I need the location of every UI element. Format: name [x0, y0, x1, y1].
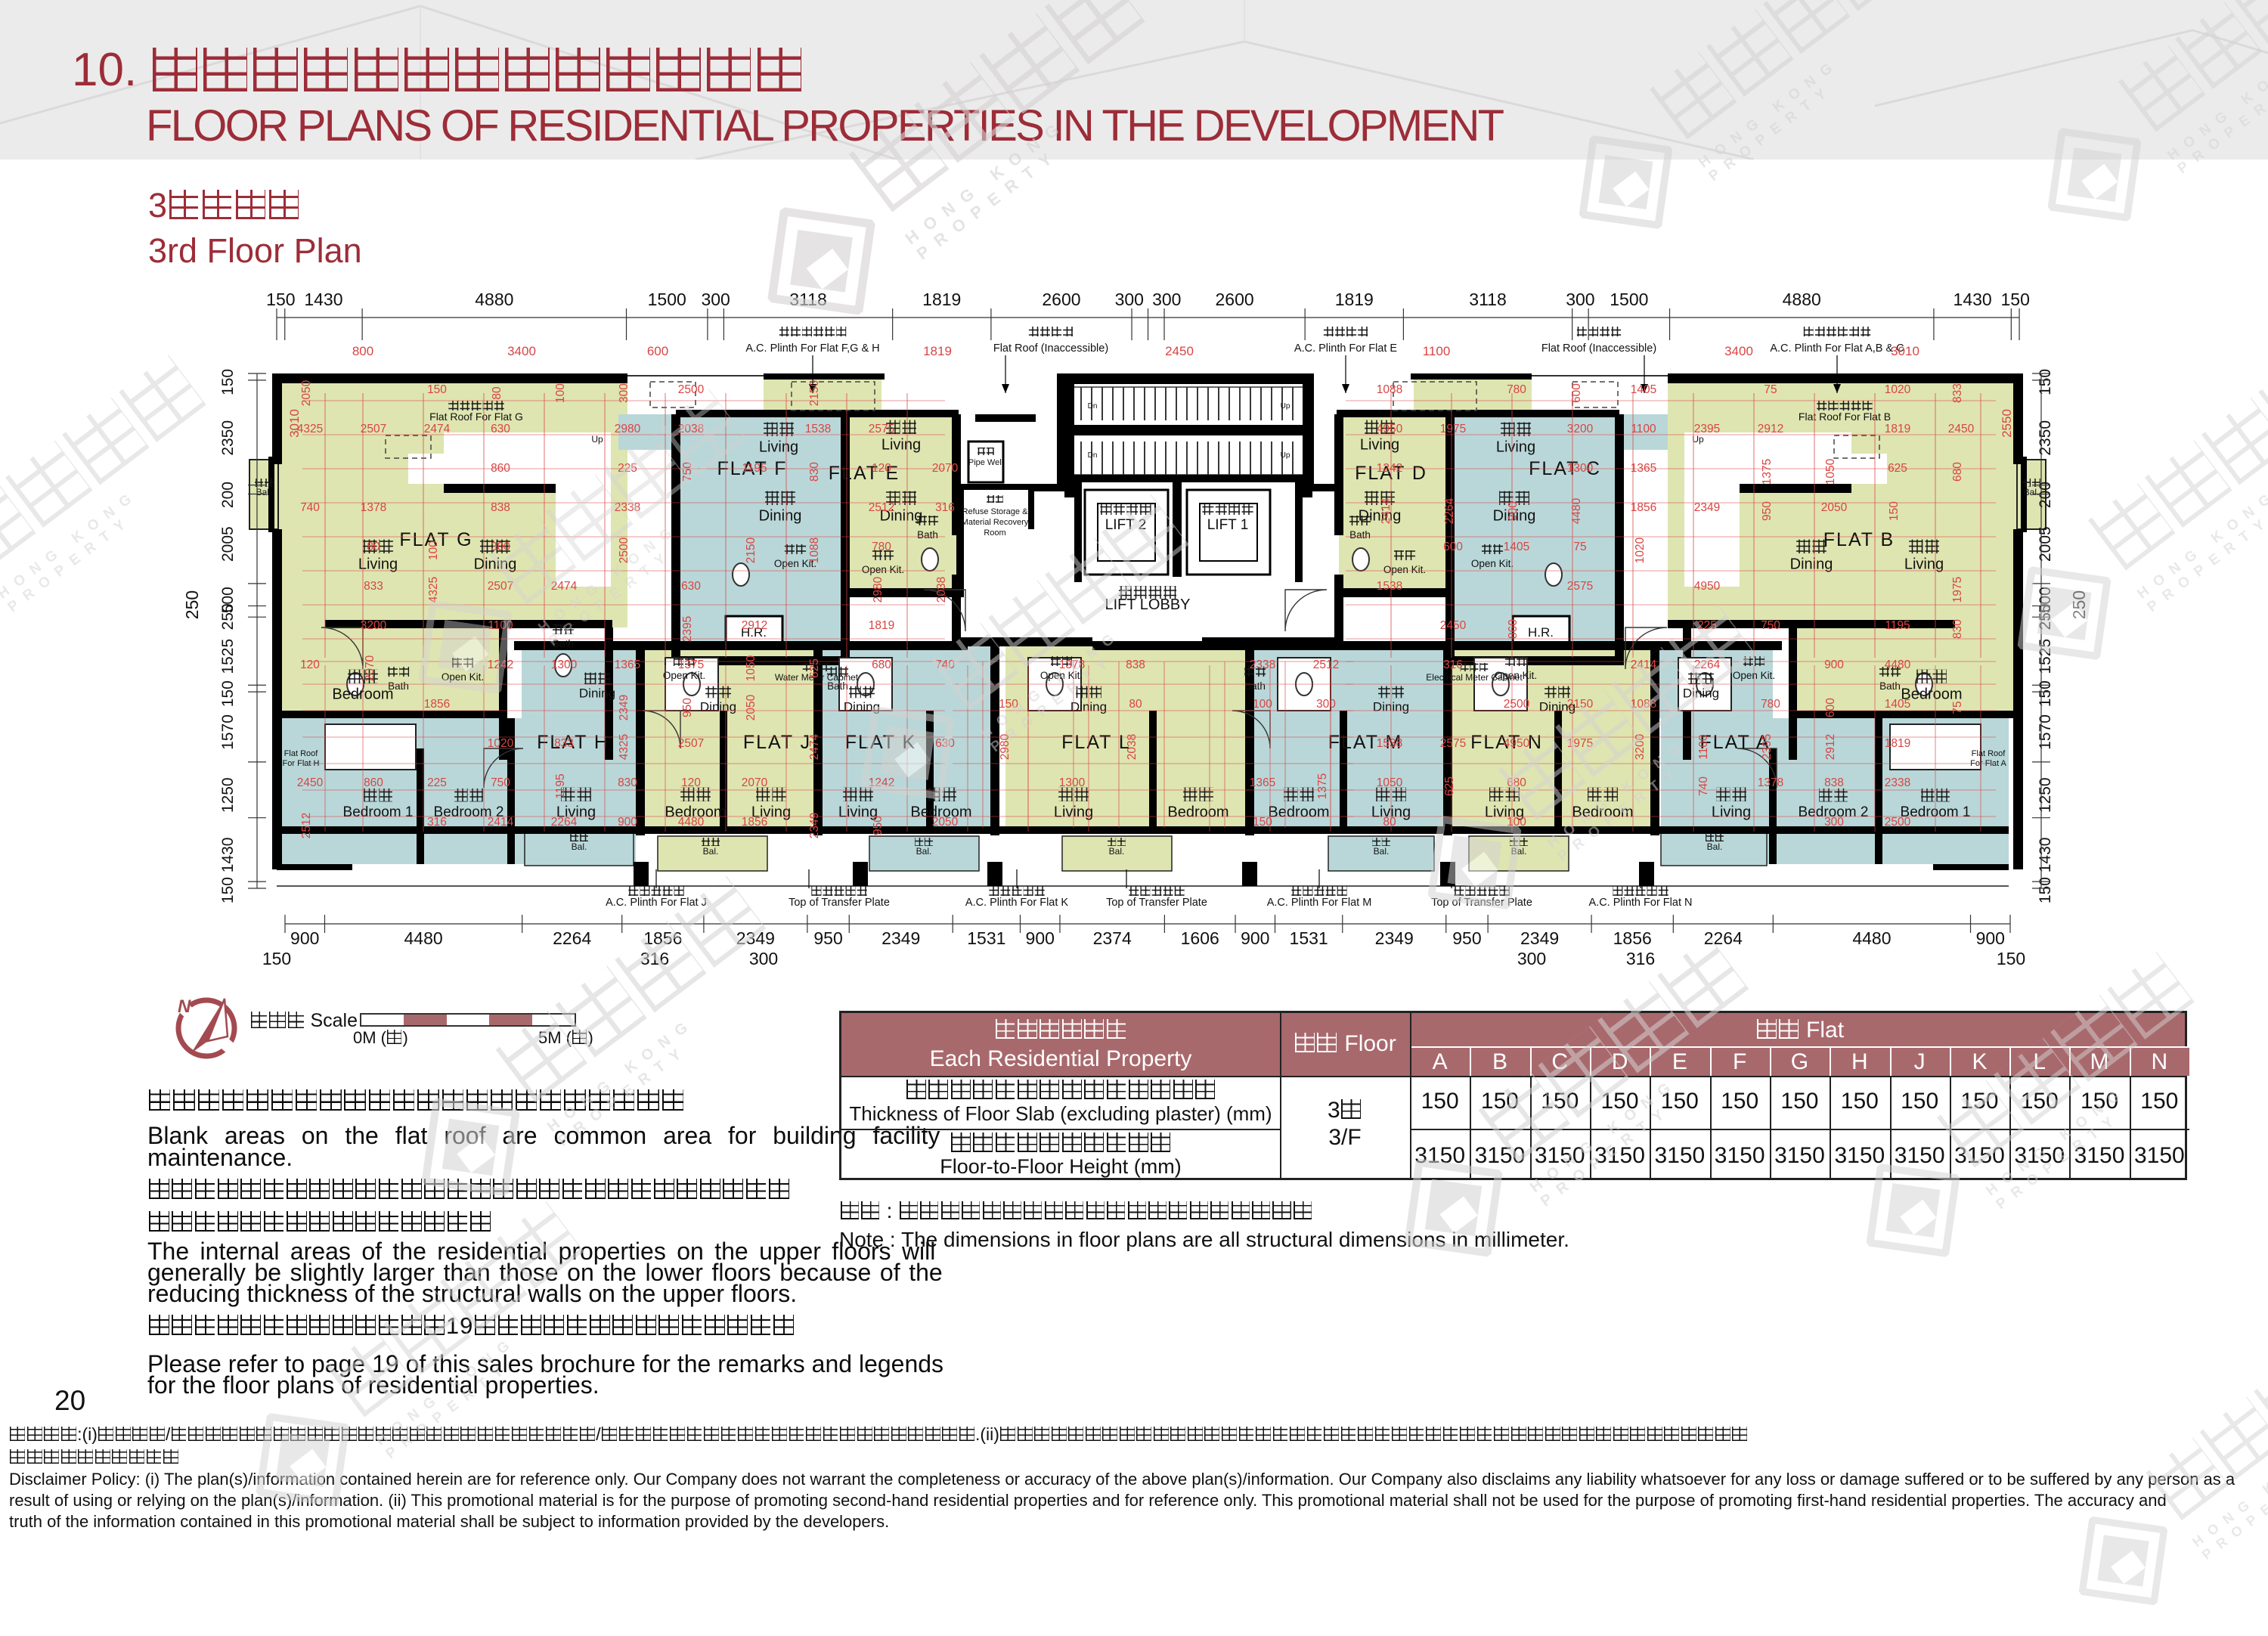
svg-text:FLAT A: FLAT A [1699, 732, 1770, 753]
svg-text:1250: 1250 [2037, 777, 2054, 813]
svg-text:838: 838 [491, 501, 510, 514]
svg-text:2338: 2338 [1250, 658, 1275, 671]
svg-text:1375: 1375 [1316, 773, 1329, 799]
svg-text:1195: 1195 [1885, 619, 1910, 632]
svg-text:Living: Living [1904, 556, 1944, 572]
svg-text:80: 80 [367, 541, 380, 553]
svg-text:Dining: Dining [700, 700, 736, 714]
svg-text:2512: 2512 [869, 501, 894, 514]
svg-text:Living: Living [1496, 438, 1535, 455]
svg-text:300: 300 [701, 290, 730, 309]
svg-text:200: 200 [2037, 482, 2054, 508]
svg-text:838: 838 [1824, 776, 1844, 789]
svg-text:1378: 1378 [1758, 776, 1783, 789]
svg-text:FLAT B: FLAT B [1823, 529, 1895, 550]
svg-text:150: 150 [2037, 877, 2054, 903]
svg-text:860: 860 [364, 776, 383, 789]
svg-text:4880: 4880 [475, 290, 513, 309]
svg-text:Flat Roof (Inaccessible): Flat Roof (Inaccessible) [1541, 342, 1656, 355]
svg-text:2912: 2912 [1824, 734, 1837, 760]
svg-text:1819: 1819 [922, 290, 961, 309]
svg-text:2349: 2349 [1520, 928, 1559, 948]
svg-text:225: 225 [427, 776, 447, 789]
svg-text:Dining: Dining [1683, 686, 1719, 701]
svg-text:1430: 1430 [304, 290, 342, 309]
svg-text:Electrical Meter Cabinet: Electrical Meter Cabinet [1426, 672, 1523, 683]
svg-text:680: 680 [872, 658, 891, 671]
svg-text:1050: 1050 [1377, 776, 1403, 789]
svg-text:150: 150 [1253, 816, 1272, 829]
svg-text:2414: 2414 [1631, 658, 1657, 671]
svg-text:FLAT L: FLAT L [1061, 732, 1131, 753]
svg-text:630: 630 [681, 580, 701, 593]
svg-text:2005: 2005 [219, 526, 237, 562]
svg-text:Top of Transfer Plate: Top of Transfer Plate [789, 897, 890, 909]
svg-text:1819: 1819 [923, 344, 952, 358]
svg-text:4480: 4480 [678, 816, 705, 829]
svg-text:4325: 4325 [618, 734, 631, 760]
svg-text:Flat Roof For Flat G: Flat Roof For Flat G [429, 411, 523, 423]
svg-text:316: 316 [935, 501, 955, 514]
svg-text:800: 800 [352, 344, 373, 358]
svg-text:150: 150 [2037, 680, 2054, 707]
svg-text:300: 300 [1566, 290, 1594, 309]
svg-text:Dn: Dn [1088, 402, 1098, 411]
svg-text:4950: 4950 [1377, 423, 1403, 435]
svg-text:750: 750 [1761, 619, 1780, 632]
svg-text:3200: 3200 [1567, 423, 1594, 435]
svg-text:4480: 4480 [1885, 658, 1911, 671]
svg-text:150: 150 [1888, 501, 1901, 521]
svg-text:1405: 1405 [1885, 698, 1910, 711]
svg-text:4480: 4480 [404, 928, 442, 948]
svg-text:120: 120 [872, 462, 891, 475]
svg-text:2474: 2474 [424, 423, 451, 435]
svg-text:1531: 1531 [967, 928, 1005, 948]
svg-text:1538: 1538 [1377, 580, 1402, 593]
svg-text:750: 750 [681, 462, 694, 482]
svg-text:1020: 1020 [1885, 383, 1911, 396]
svg-text:2414: 2414 [1380, 497, 1393, 524]
svg-text:A.C. Plinth For Flat M: A.C. Plinth For Flat M [1267, 897, 1372, 909]
svg-text:2507: 2507 [678, 737, 704, 750]
svg-text:300: 300 [618, 383, 631, 403]
svg-text:Bal.: Bal. [916, 846, 932, 857]
svg-text:Dining: Dining [474, 556, 517, 572]
svg-text:1195: 1195 [742, 462, 767, 475]
svg-text:680: 680 [1951, 462, 1964, 482]
svg-text:1050: 1050 [1824, 458, 1837, 485]
svg-text:1500: 1500 [648, 290, 686, 309]
svg-text:Up: Up [1281, 402, 1290, 411]
svg-text:3400: 3400 [1724, 344, 1753, 358]
svg-text:1819: 1819 [1335, 290, 1374, 309]
svg-text:1538: 1538 [805, 423, 831, 435]
svg-text:2150: 2150 [808, 380, 821, 406]
svg-text:2070: 2070 [932, 462, 959, 475]
svg-text:4950: 4950 [1504, 737, 1530, 750]
svg-text:Material Recovery: Material Recovery [962, 518, 1029, 527]
svg-text:1819: 1819 [1885, 737, 1910, 750]
svg-text:900: 900 [290, 928, 319, 948]
svg-text:1819: 1819 [1885, 423, 1910, 435]
svg-text:1020: 1020 [488, 737, 514, 750]
svg-text:Up: Up [1692, 434, 1704, 445]
svg-text:1365: 1365 [615, 658, 640, 671]
svg-text:316: 316 [427, 816, 447, 829]
svg-text:1088: 1088 [808, 538, 821, 563]
svg-text:950: 950 [1452, 928, 1481, 948]
svg-text:1242: 1242 [488, 658, 513, 671]
svg-text:950: 950 [1761, 501, 1774, 521]
svg-text:Room: Room [984, 528, 1005, 538]
svg-text:Bedroom: Bedroom [1167, 804, 1228, 820]
svg-text:2575: 2575 [1440, 737, 1466, 750]
svg-text:2349: 2349 [881, 928, 920, 948]
svg-text:2474: 2474 [808, 733, 821, 760]
svg-text:1088: 1088 [1631, 698, 1656, 711]
svg-text:4480: 4480 [1570, 497, 1583, 524]
svg-text:300: 300 [1115, 290, 1144, 309]
svg-text:740: 740 [300, 501, 320, 514]
svg-text:2038: 2038 [935, 577, 948, 603]
svg-text:780: 780 [1761, 698, 1780, 711]
svg-text:2264: 2264 [551, 816, 578, 829]
svg-text:2050: 2050 [932, 816, 959, 829]
svg-text:4880: 4880 [1783, 290, 1821, 309]
svg-text:1378: 1378 [361, 501, 386, 514]
svg-text:780: 780 [1507, 383, 1526, 396]
svg-text:2264: 2264 [1694, 658, 1721, 671]
svg-text:75: 75 [1951, 701, 1964, 714]
svg-text:1365: 1365 [1250, 776, 1275, 789]
svg-text:LIFT LOBBY: LIFT LOBBY [1105, 596, 1190, 613]
svg-text:A.C. Plinth For Flat F,G & H: A.C. Plinth For Flat F,G & H [745, 342, 879, 355]
svg-text:2395: 2395 [681, 616, 694, 642]
svg-text:600: 600 [647, 344, 668, 358]
svg-text:100: 100 [1507, 816, 1526, 829]
svg-text:Up: Up [591, 434, 603, 445]
svg-text:1375: 1375 [1761, 459, 1774, 485]
svg-text:Open Kit.: Open Kit. [1040, 670, 1083, 681]
svg-text:1300: 1300 [1059, 776, 1086, 789]
svg-text:740: 740 [1697, 776, 1710, 796]
svg-text:833: 833 [554, 737, 574, 750]
svg-text:860: 860 [1507, 619, 1520, 639]
svg-text:1525: 1525 [219, 639, 237, 674]
svg-text:LIFT 1: LIFT 1 [1207, 517, 1249, 533]
svg-text:Bath: Bath [917, 529, 938, 541]
svg-text:300: 300 [491, 541, 510, 553]
svg-text:316: 316 [640, 949, 669, 968]
svg-text:830: 830 [618, 776, 637, 789]
svg-text:1378: 1378 [1059, 658, 1085, 671]
svg-text:100: 100 [1253, 698, 1272, 711]
svg-text:900: 900 [1507, 501, 1520, 521]
svg-text:833: 833 [364, 580, 383, 593]
svg-text:1020: 1020 [1634, 537, 1647, 563]
svg-text:Open Kit.: Open Kit. [663, 670, 705, 681]
svg-text:2349: 2349 [618, 695, 631, 720]
svg-text:2600: 2600 [1042, 290, 1080, 309]
svg-text:100: 100 [427, 541, 440, 560]
svg-text:2512: 2512 [1313, 658, 1339, 671]
svg-text:Living: Living [759, 438, 798, 455]
svg-text:Dining: Dining [844, 700, 880, 714]
svg-text:1975: 1975 [1951, 577, 1964, 603]
svg-text:250: 250 [182, 590, 202, 619]
svg-text:Open Kit.: Open Kit. [862, 564, 904, 575]
svg-text:900: 900 [1976, 928, 2005, 948]
svg-text:75: 75 [1573, 541, 1586, 553]
svg-text:Bal.: Bal. [256, 487, 272, 497]
svg-text:316: 316 [1626, 949, 1655, 968]
svg-text:2050: 2050 [745, 694, 758, 720]
svg-text:740: 740 [935, 658, 955, 671]
svg-text:Top of Transfer Plate: Top of Transfer Plate [1106, 897, 1207, 909]
svg-text:2338: 2338 [1885, 776, 1910, 789]
svg-text:1088: 1088 [1377, 383, 1402, 396]
svg-text:A.C. Plinth For Flat J: A.C. Plinth For Flat J [606, 897, 707, 909]
svg-text:150: 150 [427, 383, 447, 396]
svg-text:150: 150 [2037, 369, 2054, 395]
svg-text:225: 225 [618, 462, 637, 475]
svg-text:2050: 2050 [300, 380, 313, 406]
svg-text:80: 80 [1383, 816, 1396, 829]
svg-text:3200: 3200 [1634, 733, 1647, 760]
svg-text:838: 838 [1126, 658, 1145, 671]
svg-text:80: 80 [491, 386, 503, 400]
svg-text:830: 830 [1951, 619, 1964, 639]
svg-text:2395: 2395 [1761, 734, 1774, 760]
svg-text:1050: 1050 [745, 655, 758, 681]
svg-text:2450: 2450 [1165, 344, 1194, 358]
svg-text:2575: 2575 [1567, 580, 1593, 593]
svg-text:900: 900 [1241, 928, 1269, 948]
svg-text:2349: 2349 [808, 813, 821, 838]
svg-text:2264: 2264 [1704, 928, 1743, 948]
svg-text:2349: 2349 [1694, 501, 1720, 514]
svg-text:2450: 2450 [1440, 619, 1467, 632]
svg-text:150: 150 [262, 949, 291, 968]
svg-text:900: 900 [1026, 928, 1055, 948]
svg-text:2264: 2264 [1443, 497, 1456, 524]
svg-text:Bal.: Bal. [1707, 841, 1723, 852]
svg-text:Dn: Dn [1088, 451, 1098, 460]
svg-text:3010: 3010 [287, 409, 302, 438]
svg-text:1300: 1300 [1567, 462, 1594, 475]
svg-text:2507: 2507 [361, 423, 386, 435]
svg-text:1856: 1856 [1613, 928, 1652, 948]
svg-text:950: 950 [872, 816, 885, 835]
svg-text:Bal.: Bal. [1511, 846, 1527, 857]
svg-text:2450: 2450 [1948, 423, 1975, 435]
svg-text:4480: 4480 [1852, 928, 1891, 948]
svg-text:200: 200 [219, 482, 237, 508]
svg-text:Bath: Bath [553, 638, 574, 649]
svg-text:1570: 1570 [2037, 714, 2054, 750]
svg-text:300: 300 [1517, 949, 1546, 968]
svg-text:2150: 2150 [1567, 698, 1594, 711]
svg-text:860: 860 [491, 462, 510, 475]
svg-text:2349: 2349 [1375, 928, 1414, 948]
svg-text:A.C. Plinth For Flat K: A.C. Plinth For Flat K [965, 897, 1069, 909]
svg-text:625: 625 [808, 658, 821, 678]
svg-text:2500: 2500 [1885, 816, 1911, 829]
svg-text:Living: Living [358, 556, 398, 572]
svg-text:2070: 2070 [364, 655, 376, 681]
svg-text:2912: 2912 [742, 619, 767, 632]
svg-text:150: 150 [999, 698, 1018, 711]
svg-text:833: 833 [1951, 383, 1964, 403]
svg-text:316: 316 [1443, 658, 1463, 671]
svg-text:2500: 2500 [618, 537, 631, 563]
svg-text:1856: 1856 [742, 816, 767, 829]
svg-text:630: 630 [935, 737, 955, 750]
svg-text:150: 150 [2000, 290, 2029, 309]
svg-text:900: 900 [618, 816, 637, 829]
svg-text:A.C. Plinth For Flat N: A.C. Plinth For Flat N [1589, 897, 1693, 909]
svg-text:Pipe Well: Pipe Well [968, 458, 1003, 467]
svg-text:300: 300 [1824, 816, 1844, 829]
svg-text:1538: 1538 [1377, 737, 1402, 750]
svg-text:Dining: Dining [759, 507, 802, 524]
svg-text:1856: 1856 [1631, 501, 1656, 514]
svg-text:2450: 2450 [297, 776, 324, 789]
svg-text:600: 600 [1443, 541, 1463, 553]
svg-text:2050: 2050 [1821, 501, 1848, 514]
svg-text:1819: 1819 [869, 619, 894, 632]
svg-text:1975: 1975 [1567, 737, 1593, 750]
svg-text:2414: 2414 [488, 816, 514, 829]
svg-text:A.C. Plinth For Flat E: A.C. Plinth For Flat E [1294, 342, 1398, 355]
svg-text:150: 150 [219, 877, 237, 903]
svg-text:Flat Roof: Flat Roof [1972, 749, 2006, 758]
svg-text:1856: 1856 [643, 928, 682, 948]
svg-text:2512: 2512 [300, 813, 313, 838]
svg-text:2980: 2980 [872, 576, 885, 603]
svg-text:2980: 2980 [615, 423, 641, 435]
svg-text:950: 950 [681, 698, 694, 717]
svg-text:H.R.: H.R. [1528, 625, 1554, 640]
svg-text:1500: 1500 [1610, 290, 1648, 309]
svg-text:Refuse Storage &: Refuse Storage & [962, 507, 1028, 516]
svg-text:1606: 1606 [1181, 928, 1219, 948]
svg-text:3400: 3400 [507, 344, 536, 358]
svg-text:75: 75 [1764, 383, 1777, 396]
svg-text:1430: 1430 [2037, 838, 2054, 873]
svg-text:1430: 1430 [1954, 290, 1992, 309]
svg-text:Top of Transfer Plate: Top of Transfer Plate [1431, 897, 1532, 909]
svg-text:780: 780 [872, 541, 891, 553]
svg-text:Flat Roof (Inaccessible): Flat Roof (Inaccessible) [993, 342, 1108, 355]
svg-text:80: 80 [1129, 698, 1142, 711]
svg-text:750: 750 [491, 776, 510, 789]
svg-text:2500: 2500 [1504, 698, 1530, 711]
svg-text:600: 600 [1824, 698, 1837, 717]
svg-text:120: 120 [681, 776, 701, 789]
svg-text:FLAT K: FLAT K [845, 732, 916, 753]
svg-text:Bal.: Bal. [1374, 846, 1390, 857]
svg-text:Living: Living [881, 436, 921, 453]
svg-text:Bal.: Bal. [1109, 846, 1125, 857]
svg-text:1375: 1375 [678, 658, 704, 671]
svg-text:2264: 2264 [553, 928, 591, 948]
svg-text:LIFT 2: LIFT 2 [1105, 517, 1147, 533]
svg-text:2395: 2395 [1694, 423, 1720, 435]
svg-text:250: 250 [219, 603, 237, 630]
svg-text:Bath: Bath [1879, 680, 1901, 692]
svg-text:300: 300 [1316, 698, 1336, 711]
svg-text:2474: 2474 [551, 580, 578, 593]
svg-text:150: 150 [1997, 949, 2025, 968]
svg-text:Open Kit.: Open Kit. [442, 671, 484, 683]
svg-text:Bal.: Bal. [572, 841, 587, 852]
svg-text:1405: 1405 [1631, 383, 1656, 396]
svg-text:3010: 3010 [1891, 344, 1919, 358]
svg-text:2350: 2350 [2037, 420, 2054, 456]
svg-text:120: 120 [300, 658, 320, 671]
svg-text:630: 630 [491, 423, 510, 435]
svg-text:2338: 2338 [615, 501, 640, 514]
svg-text:625: 625 [1888, 462, 1907, 475]
svg-text:1242: 1242 [1377, 462, 1402, 475]
svg-text:1242: 1242 [869, 776, 894, 789]
svg-text:A.C. Plinth For Flat A,B & C: A.C. Plinth For Flat A,B & C [1770, 342, 1904, 355]
svg-text:680: 680 [1507, 776, 1526, 789]
svg-text:1570: 1570 [219, 714, 237, 750]
svg-text:1250: 1250 [219, 777, 237, 813]
svg-text:Living: Living [1360, 436, 1399, 453]
svg-text:2600: 2600 [1216, 290, 1254, 309]
svg-text:150: 150 [219, 680, 237, 707]
svg-text:1300: 1300 [551, 658, 578, 671]
svg-text:Bal.: Bal. [703, 846, 719, 857]
svg-text:2350: 2350 [219, 420, 237, 456]
svg-text:225: 225 [1697, 619, 1717, 632]
svg-text:1531: 1531 [1290, 928, 1328, 948]
svg-text:950: 950 [813, 928, 842, 948]
svg-text:2374: 2374 [1093, 928, 1132, 948]
svg-text:2500: 2500 [678, 383, 705, 396]
svg-text:1100: 1100 [1697, 734, 1710, 760]
svg-text:2550: 2550 [2000, 409, 2014, 438]
svg-text:FLAT J: FLAT J [743, 732, 811, 753]
svg-text:2150: 2150 [745, 537, 758, 563]
svg-text:830: 830 [808, 462, 821, 482]
svg-text:Bath: Bath [1349, 529, 1371, 541]
svg-text:2005: 2005 [2037, 526, 2054, 562]
svg-text:1365: 1365 [1631, 462, 1656, 475]
svg-text:100: 100 [554, 383, 567, 403]
svg-text:2575: 2575 [869, 423, 894, 435]
svg-text:600: 600 [1570, 383, 1583, 403]
svg-text:4950: 4950 [1694, 580, 1721, 593]
svg-text:3118: 3118 [1469, 290, 1506, 309]
svg-text:900: 900 [1824, 658, 1844, 671]
svg-text:1430: 1430 [219, 838, 237, 873]
svg-text:2980: 2980 [999, 733, 1012, 760]
svg-text:Dining: Dining [579, 686, 615, 701]
svg-text:Bedroom: Bedroom [1572, 804, 1633, 820]
svg-text:2038: 2038 [1126, 734, 1139, 760]
svg-text:300: 300 [749, 949, 778, 968]
svg-text:1975: 1975 [1440, 423, 1466, 435]
svg-text:Living: Living [1712, 804, 1751, 820]
svg-text:2349: 2349 [736, 928, 775, 948]
svg-text:150: 150 [266, 290, 295, 309]
svg-text:1405: 1405 [1504, 541, 1529, 553]
